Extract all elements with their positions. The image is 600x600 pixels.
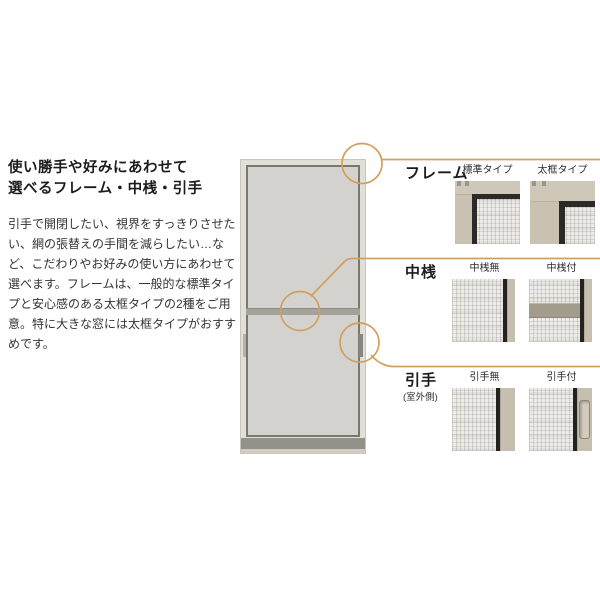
frame-tab <box>542 181 546 186</box>
callout-line-handle <box>371 355 600 367</box>
section-sublabel-handle: (室外側) <box>403 389 438 403</box>
window-frame-edge <box>584 279 592 342</box>
screen-door-illustration <box>240 159 366 454</box>
door-left-handle <box>243 334 246 357</box>
section-label-midrail: 中桟 <box>405 261 437 282</box>
screen-frame-corner <box>559 201 595 244</box>
door-bottom-rail <box>241 438 365 449</box>
thumbnail-frame-thick <box>530 181 595 244</box>
page-title: 使い勝手や好みにあわせて 選べるフレーム・中桟・引手 <box>8 158 244 200</box>
option-midrail-none: 中桟無 <box>452 263 517 342</box>
frame-tab <box>457 181 461 186</box>
mid-rail-bar <box>529 303 580 318</box>
option-caption: 中桟付 <box>529 263 594 279</box>
door-sill <box>241 449 365 453</box>
option-caption: 引手付 <box>529 372 594 388</box>
door-right-handle <box>359 334 363 357</box>
thumbnail-midrail-with <box>529 279 592 342</box>
intro-paragraph: 引手で開閉したい、視界をすっきりさせたい、網の張替えの手間を減らしたい…など、こ… <box>8 214 244 354</box>
option-handle-with: 引手付 <box>529 372 594 451</box>
option-frame-thick: 太框タイプ <box>530 165 595 244</box>
screen-frame-corner <box>472 194 520 244</box>
window-frame-edge <box>500 388 515 451</box>
title-line-2: 選べるフレーム・中桟・引手 <box>8 179 244 200</box>
option-handle-none: 引手無 <box>452 372 517 451</box>
frame-tab <box>532 181 536 186</box>
option-frame-standard: 標準タイプ <box>455 165 520 244</box>
window-frame-edge <box>507 279 515 342</box>
title-line-1: 使い勝手や好みにあわせて <box>8 158 244 179</box>
option-caption: 引手無 <box>452 372 517 388</box>
thumbnail-midrail-none <box>452 279 515 342</box>
thumbnail-handle-with <box>529 388 592 451</box>
option-caption: 中桟無 <box>452 263 517 279</box>
pull-handle <box>579 400 590 439</box>
thumbnail-frame-standard <box>455 181 520 244</box>
thumbnail-handle-none <box>452 388 515 451</box>
section-label-handle: 引手 <box>405 369 437 390</box>
option-caption: 標準タイプ <box>455 165 520 181</box>
door-mid-rail <box>246 308 360 315</box>
product-info-panel: 使い勝手や好みにあわせて 選べるフレーム・中桟・引手 引手で開閉したい、視界をす… <box>0 0 600 600</box>
frame-tab <box>465 181 469 186</box>
option-caption: 太框タイプ <box>530 165 595 181</box>
frame-top <box>530 181 595 202</box>
door-mesh <box>246 165 360 437</box>
option-midrail-with: 中桟付 <box>529 263 594 342</box>
intro-text-block: 使い勝手や好みにあわせて 選べるフレーム・中桟・引手 引手で開閉したい、視界をす… <box>8 158 244 354</box>
